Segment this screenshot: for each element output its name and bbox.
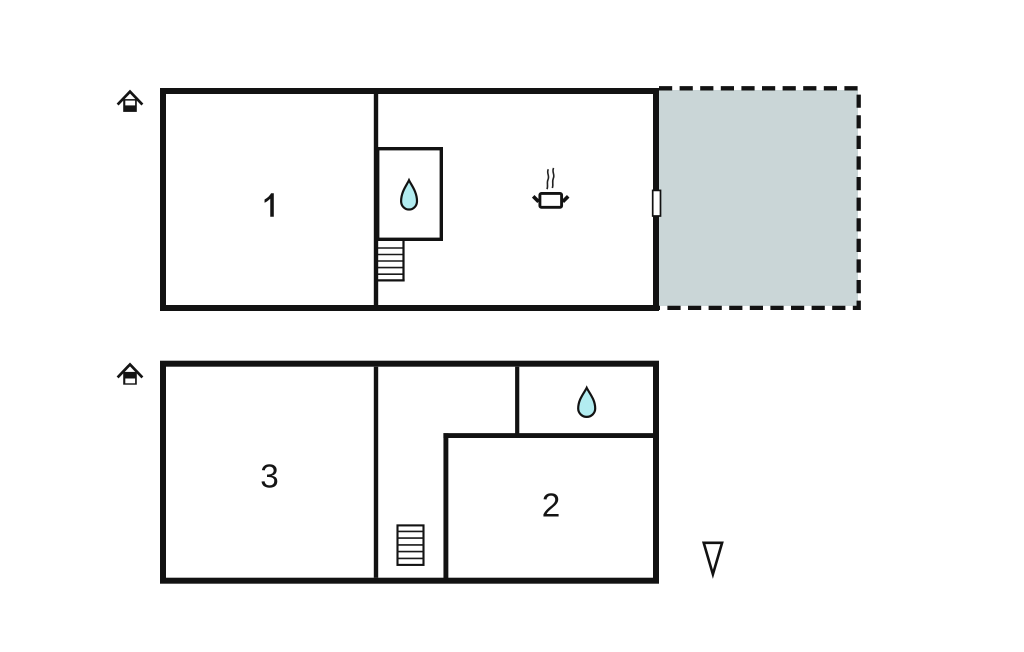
svg-text:2: 2	[542, 487, 561, 524]
svg-text:3: 3	[260, 459, 279, 496]
